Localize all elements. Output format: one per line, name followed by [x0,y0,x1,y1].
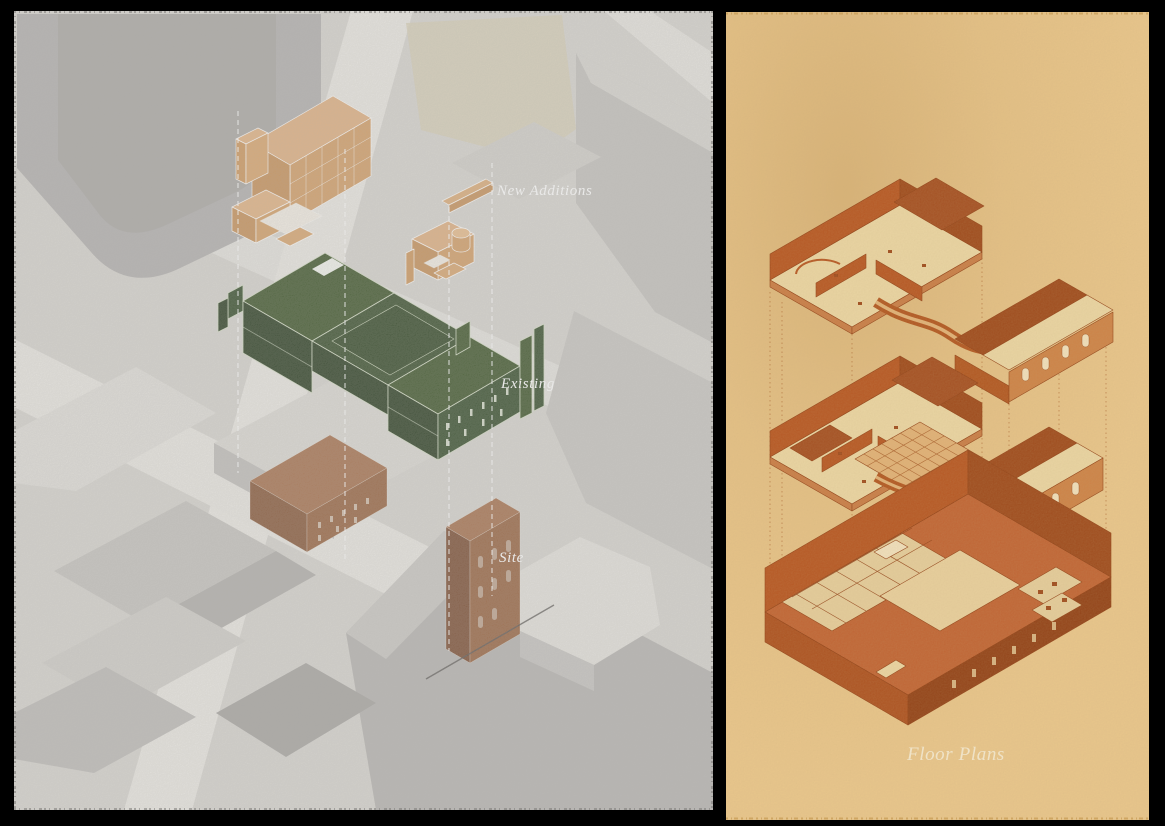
grain-texture [14,11,713,810]
presentation-board: New Additions Existing Site [0,0,1165,826]
floor-plans-panel: Floor Plans [726,12,1149,820]
paper-grain-texture [726,12,1149,820]
site-axonometric-panel: New Additions Existing Site [14,11,713,810]
